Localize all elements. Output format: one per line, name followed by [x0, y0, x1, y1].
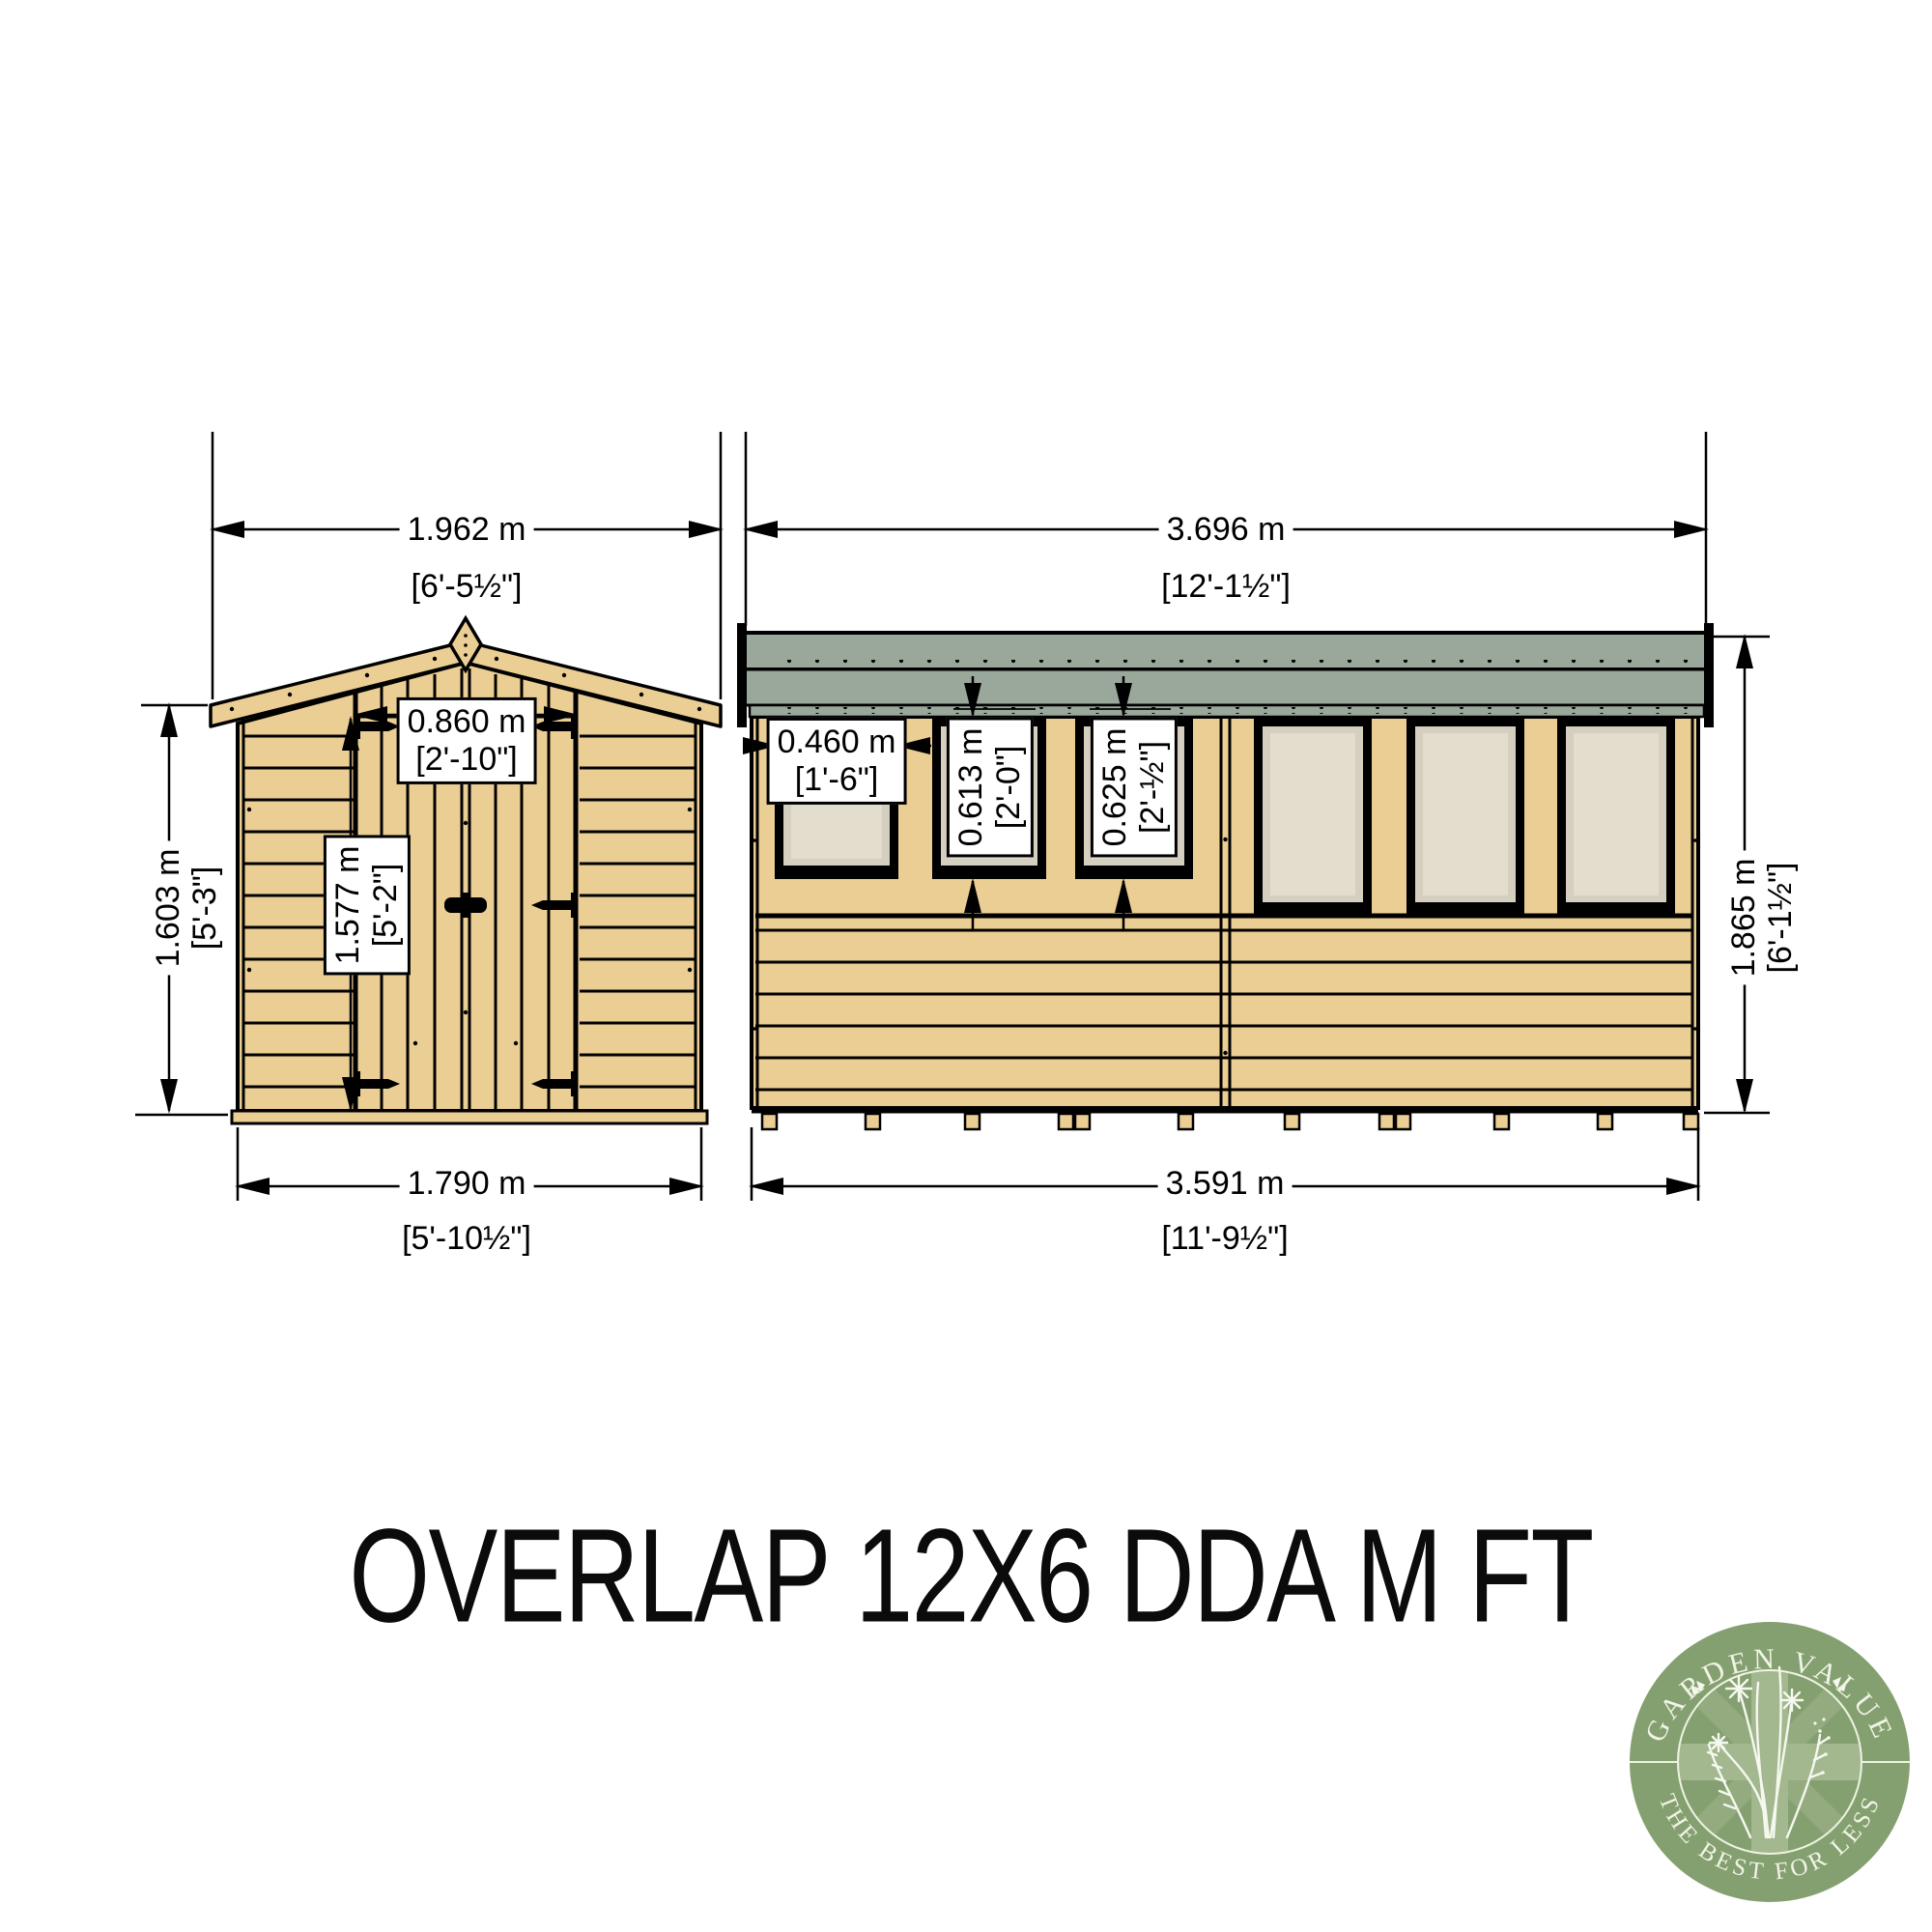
front-roof-width-imperial: [6'-5½"] [404, 568, 530, 605]
side-window-height-b-label: 0.625 m [2'-½"] [1091, 718, 1178, 858]
floor-bearers [762, 1114, 1698, 1129]
side-roof-length-imperial: [12'-1½"] [1153, 568, 1298, 605]
shed-technical-drawing-page: GARDEN VALUE THE BEST FOR LESS 1.962 m [… [0, 0, 1932, 1932]
side-roof-felt [737, 623, 1714, 727]
front-base-width-metric: 1.790 m [400, 1165, 534, 1202]
side-elevation-drawing [737, 623, 1714, 1129]
product-title: OVERLAP 12X6 DDA M FT [349, 1500, 1592, 1654]
front-elevation-drawing [211, 618, 721, 1123]
front-wall-height-label: 1.603 m [5'-3"] [150, 841, 223, 976]
side-roof-length-metric: 3.696 m [1159, 511, 1293, 548]
garden-value-logo: GARDEN VALUE THE BEST FOR LESS [1630, 1622, 1910, 1902]
door-width-label: 0.860 m [2'-10"] [397, 697, 537, 784]
side-wall-height-label: 1.865 m [6'-1½"] [1725, 851, 1799, 985]
side-window-height-a-label: 0.613 m [2'-0"] [947, 718, 1034, 858]
door-height-label: 1.577 m [5'-2"] [324, 836, 411, 976]
front-roof-width-metric: 1.962 m [400, 511, 534, 548]
side-window-width-label: 0.460 m [1'-6"] [767, 718, 907, 805]
side-base-length-metric: 3.591 m [1158, 1165, 1293, 1202]
front-base-width-imperial: [5'-10½"] [394, 1220, 539, 1257]
side-base-length-imperial: [11'-9½"] [1153, 1220, 1295, 1257]
